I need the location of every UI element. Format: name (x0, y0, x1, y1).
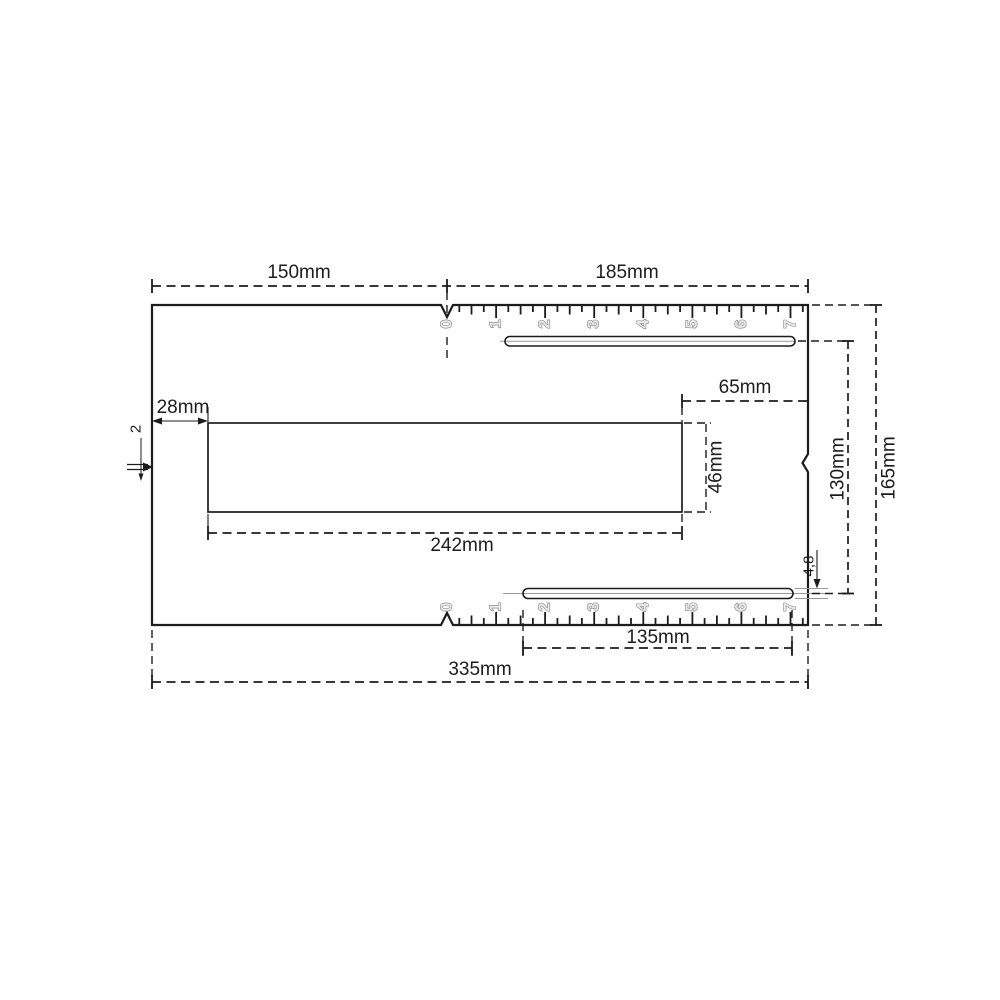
drawing-stage: 01234567 01234567 150mm 185mm 28mm (0, 0, 1000, 1000)
ruler-digit-3: 3 (586, 319, 603, 328)
edge-detail-2: 2 (127, 425, 153, 481)
label-28mm: 28mm (157, 397, 210, 418)
label-4-8: 4,8 (801, 556, 818, 577)
ruler-digit-0: 0 (439, 602, 456, 611)
ruler-digit-2: 2 (537, 602, 554, 611)
label-165mm: 165mm (879, 436, 900, 499)
label-135mm: 135mm (626, 627, 689, 648)
ruler-digit-4: 4 (635, 319, 652, 328)
ruler-digit-2: 2 (537, 319, 554, 328)
ruler-digit-7: 7 (782, 319, 799, 328)
label-185mm: 185mm (595, 262, 658, 283)
label-150mm: 150mm (267, 262, 330, 283)
label-242mm: 242mm (430, 535, 493, 556)
dim-335mm: 335mm (152, 630, 808, 689)
ruler-digit-1: 1 (488, 602, 505, 611)
arrowhead-down (814, 579, 821, 589)
ruler-digit-5: 5 (684, 319, 701, 328)
ruler-digit-6: 6 (733, 602, 750, 611)
ruler-digit-1: 1 (488, 319, 505, 328)
ruler-digit-4: 4 (635, 602, 652, 611)
label-46mm: 46mm (706, 441, 727, 494)
ruler-digit-5: 5 (684, 602, 701, 611)
label-65mm: 65mm (719, 377, 772, 398)
label-335mm: 335mm (448, 659, 511, 680)
label-2: 2 (128, 425, 145, 433)
ruler-digit-3: 3 (586, 602, 603, 611)
ruler-digit-0: 0 (439, 319, 456, 328)
arrowhead-down-small (139, 474, 144, 482)
ruler-digit-7: 7 (782, 602, 799, 611)
technical-drawing-canvas: 01234567 01234567 150mm 185mm 28mm (0, 0, 1000, 1000)
ruler-digit-6: 6 (733, 319, 750, 328)
label-130mm: 130mm (828, 437, 849, 500)
dim-165mm: 165mm (812, 305, 900, 625)
